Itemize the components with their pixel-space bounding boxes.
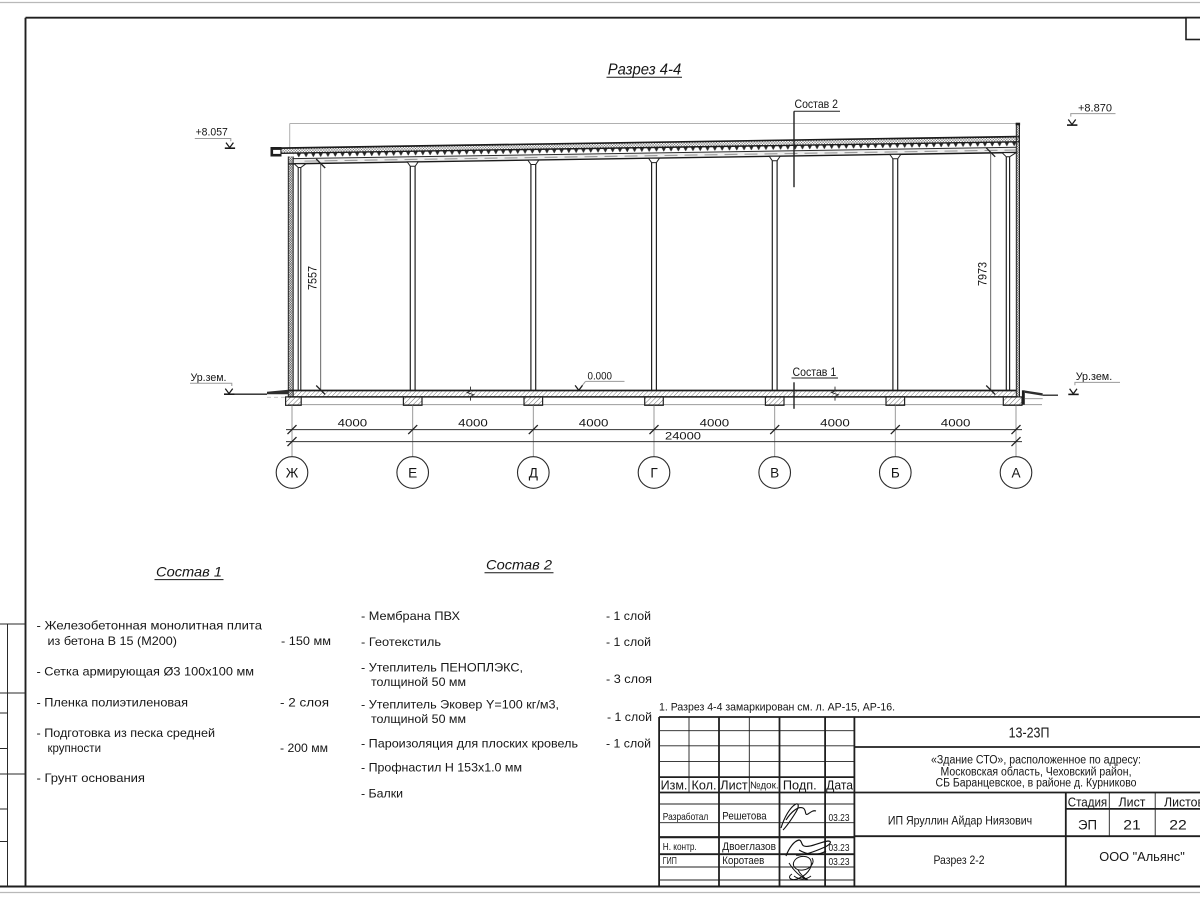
svg-text:Подп.: Подп. — [783, 777, 817, 792]
svg-text:СБ Баранцевское, в районе д. К: СБ Баранцевское, в районе д. Курниково — [936, 778, 1137, 790]
svg-text:Ур.зем.: Ур.зем. — [1076, 371, 1113, 383]
svg-text:- 1 слой: - 1 слой — [606, 610, 651, 623]
svg-text:03.23: 03.23 — [829, 857, 850, 868]
svg-text:№док.: №док. — [750, 781, 779, 792]
svg-text:- Пленка полиэтиленовая: - Пленка полиэтиленовая — [37, 697, 189, 710]
svg-text:Стадия: Стадия — [1068, 795, 1107, 809]
svg-text:Дата: Дата — [826, 777, 854, 792]
svg-text:Ур.зем.: Ур.зем. — [191, 372, 227, 384]
svg-text:- Подготовка из песка средней: - Подготовка из песка средней — [37, 727, 216, 740]
svg-text:- 1 слой: - 1 слой — [606, 738, 651, 751]
svg-text:Коротаев: Коротаев — [722, 855, 764, 867]
svg-text:Состав 1: Состав 1 — [156, 564, 222, 580]
svg-text:0.000: 0.000 — [588, 371, 613, 383]
svg-text:«Здание СТО», расположенное по: «Здание СТО», расположенное по адресу: — [931, 754, 1141, 766]
svg-text:4000: 4000 — [458, 417, 488, 429]
svg-text:4000: 4000 — [700, 417, 730, 429]
svg-text:- Профнастил Н 153х1.0 мм: - Профнастил Н 153х1.0 мм — [361, 762, 522, 775]
svg-text:из бетона В 15 (М200): из бетона В 15 (М200) — [48, 635, 178, 648]
svg-text:Е: Е — [408, 465, 417, 480]
svg-text:Состав 1: Состав 1 — [793, 366, 837, 379]
svg-text:крупности: крупности — [48, 742, 102, 755]
svg-text:4000: 4000 — [941, 417, 971, 429]
svg-text:- Пароизоляция для плоских кро: - Пароизоляция для плоских кровель — [361, 738, 578, 751]
svg-text:Кол.: Кол. — [692, 777, 717, 792]
svg-text:В: В — [770, 465, 779, 480]
svg-text:7973: 7973 — [976, 262, 990, 286]
svg-text:- 1 слой: - 1 слой — [607, 711, 652, 724]
svg-text:- Геотекстиль: - Геотекстиль — [361, 636, 441, 649]
svg-text:ООО "Альянс": ООО "Альянс" — [1099, 850, 1185, 864]
svg-text:- Сетка армирующая Ø3 100х100: - Сетка армирующая Ø3 100х100 мм — [37, 666, 255, 679]
svg-text:толщиной 50 мм: толщиной 50 мм — [371, 676, 466, 689]
svg-text:Б: Б — [891, 465, 900, 480]
svg-text:- Железобетонная монолитная п: - Железобетонная монолитная плита — [37, 620, 263, 633]
svg-text:Лист: Лист — [1119, 795, 1146, 809]
svg-text:22: 22 — [1169, 818, 1187, 833]
svg-text:Разрез 2-2: Разрез 2-2 — [933, 854, 984, 867]
svg-text:03.23: 03.23 — [829, 843, 850, 854]
svg-text:Листов: Листов — [1164, 795, 1200, 809]
svg-text:1. Разрез 4-4 замаркирован см.: 1. Разрез 4-4 замаркирован см. л. АР-15,… — [659, 702, 895, 714]
svg-text:- 3 слоя: - 3 слоя — [606, 673, 652, 686]
svg-text:- Балки: - Балки — [361, 788, 403, 801]
svg-text:А: А — [1011, 465, 1021, 480]
svg-text:- Утеплитель Эковер Y=100 кг/м: - Утеплитель Эковер Y=100 кг/м3, — [361, 699, 559, 712]
svg-text:4000: 4000 — [338, 417, 368, 429]
svg-text:Состав 2: Состав 2 — [795, 98, 839, 111]
svg-text:- Мембрана ПВХ: - Мембрана ПВХ — [361, 610, 460, 623]
svg-text:Московская область, Чеховский: Московская область, Чеховский район, — [941, 766, 1132, 778]
svg-text:7557: 7557 — [306, 266, 320, 290]
svg-text:Двоеглазов: Двоеглазов — [722, 841, 776, 853]
svg-text:ГИП: ГИП — [663, 856, 677, 867]
svg-text:4000: 4000 — [579, 417, 609, 429]
svg-text:Н. контр.: Н. контр. — [663, 842, 697, 853]
svg-text:Лист: Лист — [720, 777, 747, 792]
svg-text:Изм.: Изм. — [661, 777, 688, 792]
svg-text:Разрез 4-4: Разрез 4-4 — [608, 62, 682, 79]
svg-text:Ж: Ж — [286, 465, 299, 480]
svg-text:- Утеплитель ПЕНОПЛЭКС,: - Утеплитель ПЕНОПЛЭКС, — [361, 662, 523, 675]
svg-text:03.23: 03.23 — [829, 813, 850, 824]
svg-text:+8.870: +8.870 — [1078, 103, 1112, 115]
svg-text:- 2 слоя: - 2 слоя — [280, 697, 329, 710]
svg-text:Решетова: Решетова — [722, 811, 767, 823]
svg-text:- 200 мм: - 200 мм — [280, 742, 328, 755]
svg-text:24000: 24000 — [665, 430, 701, 442]
svg-text:4000: 4000 — [820, 417, 850, 429]
svg-text:- Грунт основания: - Грунт основания — [37, 772, 146, 785]
svg-text:Состав 2: Состав 2 — [486, 557, 552, 573]
svg-text:13-23П: 13-23П — [1009, 725, 1050, 741]
svg-text:Разработал: Разработал — [663, 811, 709, 823]
svg-text:- 1 слой: - 1 слой — [606, 636, 651, 649]
svg-text:ИП Яруллин Айдар Ниязович: ИП Яруллин Айдар Ниязович — [888, 815, 1032, 828]
svg-text:Д: Д — [529, 465, 538, 480]
svg-text:толщиной 50 мм: толщиной 50 мм — [371, 713, 466, 726]
svg-text:ЭП: ЭП — [1078, 818, 1097, 833]
svg-text:- 150 мм: - 150 мм — [281, 635, 331, 648]
svg-text:21: 21 — [1123, 818, 1141, 833]
svg-text:Г: Г — [650, 465, 658, 480]
svg-text:+8.057: +8.057 — [196, 127, 228, 139]
